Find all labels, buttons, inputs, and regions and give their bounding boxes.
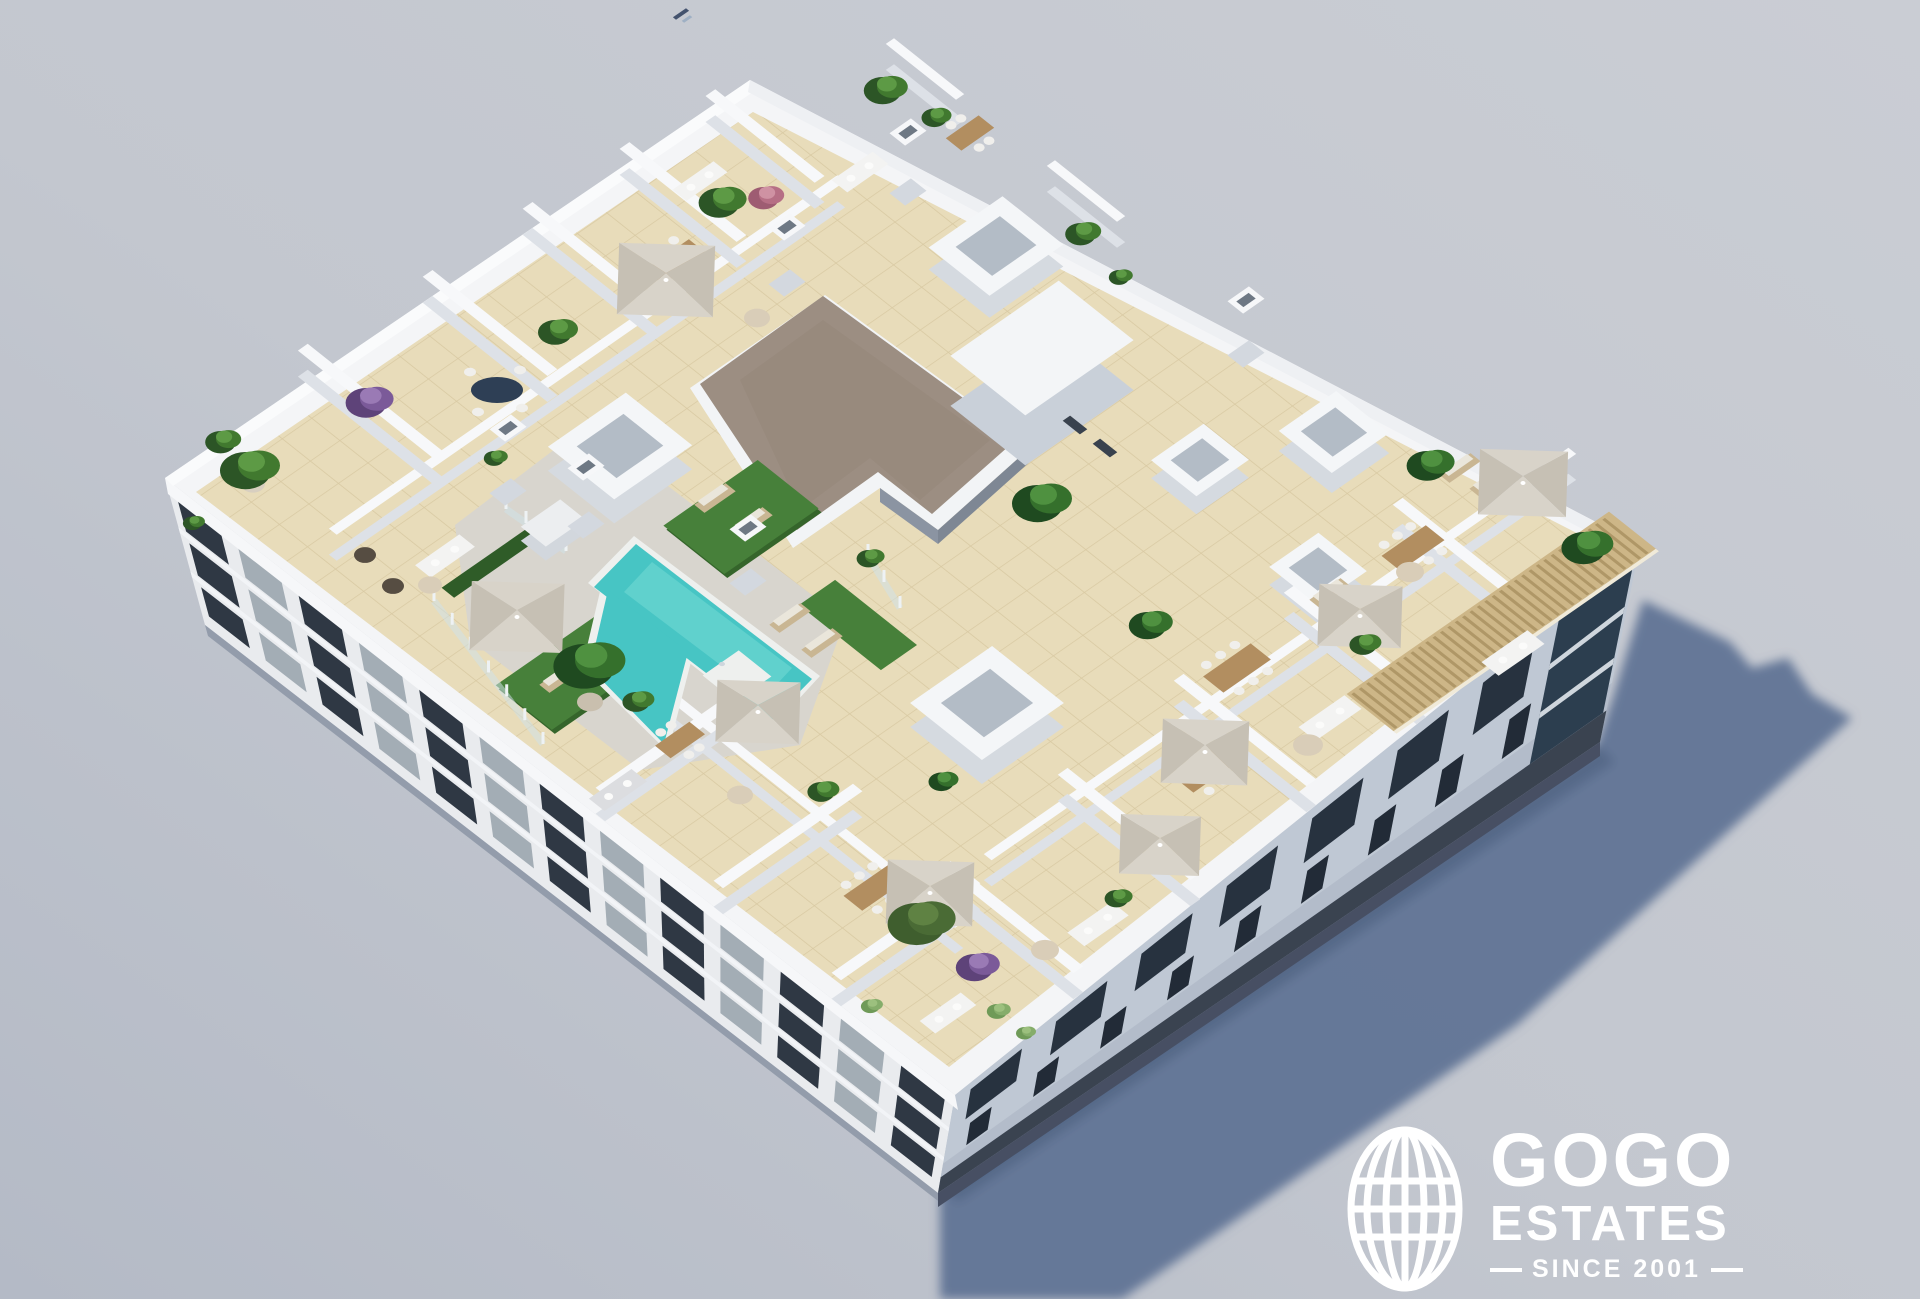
logo-text: GOGO ESTATES SINCE 2001: [1490, 1126, 1743, 1282]
brand-name-top: GOGO: [1490, 1126, 1743, 1195]
render-stage: GOGO ESTATES SINCE 2001: [0, 0, 1920, 1299]
property-render: [0, 0, 1920, 1299]
brand-name-bottom: ESTATES: [1490, 1200, 1743, 1249]
logo: GOGO ESTATES SINCE 2001: [1346, 1126, 1743, 1292]
globe-icon: [1346, 1126, 1464, 1292]
tagline-rule-right: [1711, 1268, 1743, 1272]
screenshot: { "watermark": { "brand_top": "GOGO", "b…: [0, 0, 1920, 1299]
tagline-text: SINCE 2001: [1532, 1257, 1701, 1282]
tagline-rule-left: [1490, 1268, 1522, 1272]
brand-tagline: SINCE 2001: [1490, 1257, 1743, 1282]
